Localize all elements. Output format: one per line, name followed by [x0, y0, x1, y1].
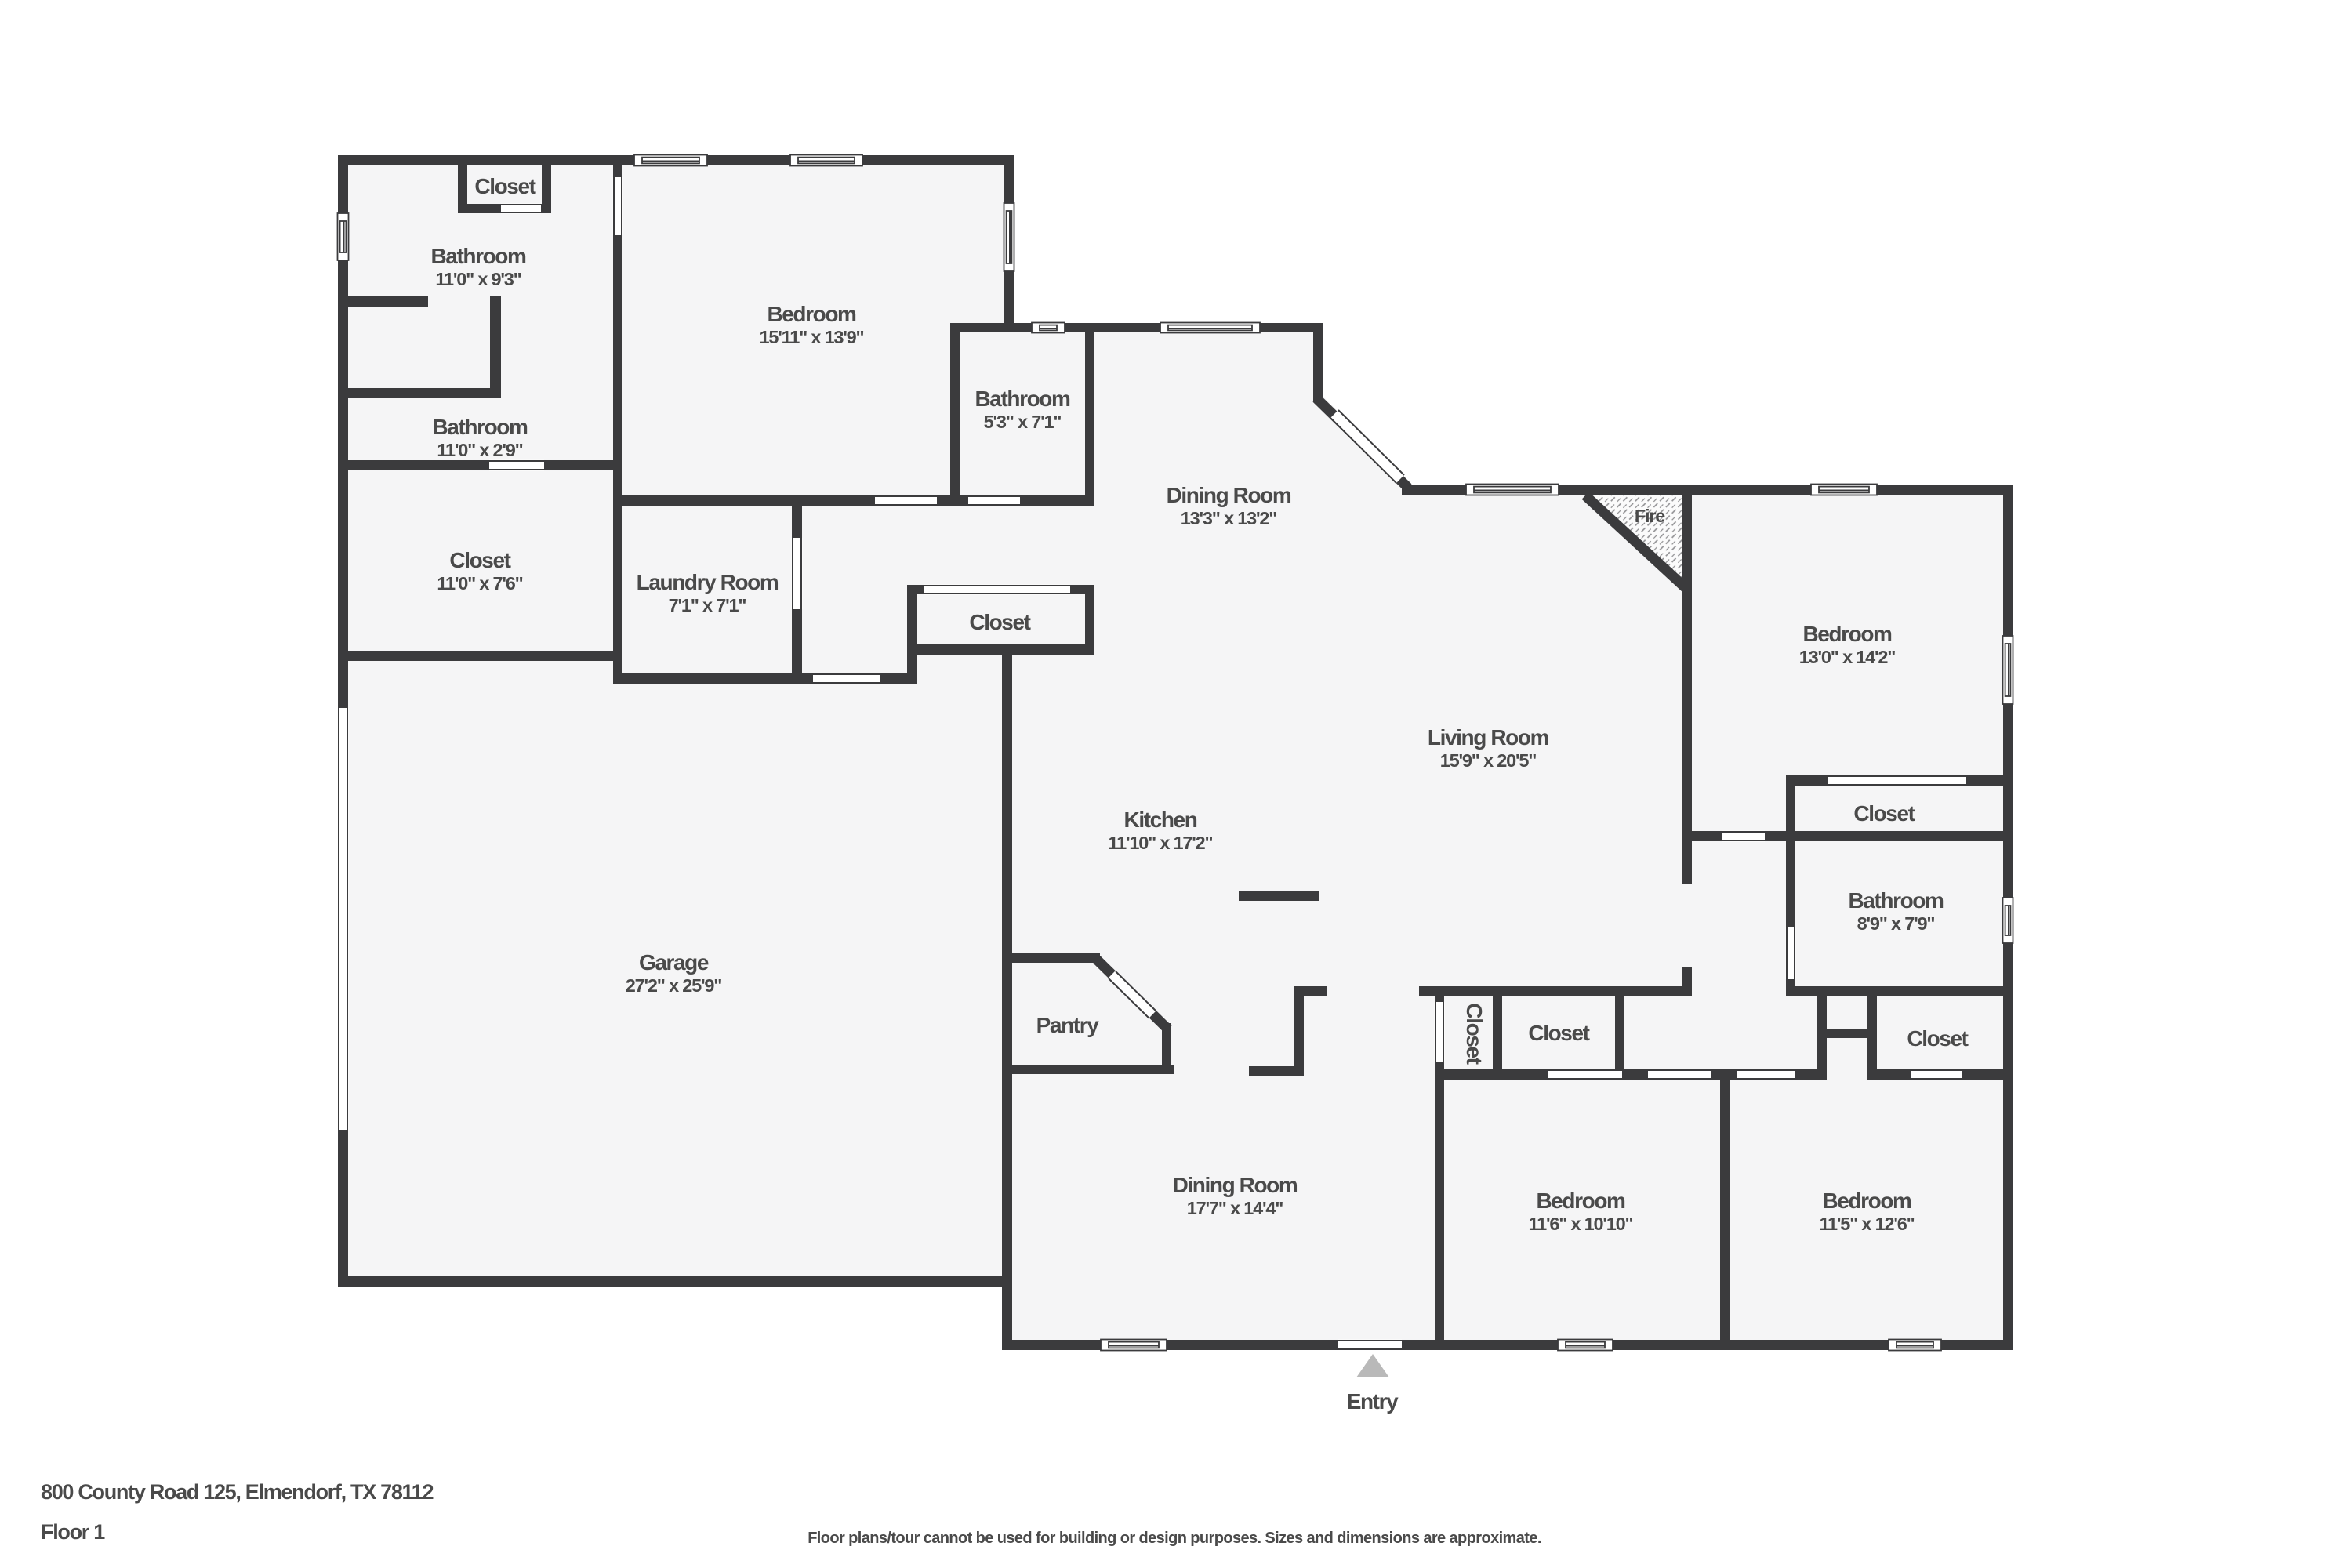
svg-text:5'3" x 7'1": 5'3" x 7'1" — [984, 412, 1062, 432]
svg-text:27'2" x 25'9": 27'2" x 25'9" — [626, 975, 721, 996]
svg-text:800 County Road 125, Elmendorf: 800 County Road 125, Elmendorf, TX 78112 — [41, 1480, 433, 1504]
svg-text:Bathroom: Bathroom — [432, 415, 528, 439]
svg-text:Bedroom: Bedroom — [1536, 1189, 1625, 1213]
svg-text:Pantry: Pantry — [1036, 1013, 1100, 1037]
svg-text:Laundry Room: Laundry Room — [637, 570, 779, 594]
svg-text:Closet: Closet — [474, 174, 535, 198]
svg-text:15'11" x 13'9": 15'11" x 13'9" — [760, 327, 864, 347]
svg-text:Closet: Closet — [1528, 1021, 1589, 1045]
svg-text:Floor 1: Floor 1 — [41, 1520, 105, 1544]
svg-text:11'0" x 2'9": 11'0" x 2'9" — [437, 440, 522, 460]
svg-text:Closet: Closet — [1462, 1003, 1486, 1064]
svg-text:Bedroom: Bedroom — [1822, 1189, 1911, 1213]
svg-text:Closet: Closet — [449, 548, 510, 572]
svg-text:11'10" x 17'2": 11'10" x 17'2" — [1109, 833, 1213, 853]
svg-text:Bathroom: Bathroom — [975, 387, 1070, 411]
svg-text:Garage: Garage — [639, 950, 709, 975]
svg-text:Closet: Closet — [969, 610, 1030, 634]
svg-text:Bathroom: Bathroom — [1848, 888, 1944, 913]
svg-text:17'7" x 14'4": 17'7" x 14'4" — [1187, 1198, 1283, 1218]
svg-text:Living Room: Living Room — [1428, 725, 1549, 750]
svg-text:Bathroom: Bathroom — [430, 244, 526, 268]
svg-text:13'3" x 13'2": 13'3" x 13'2" — [1181, 508, 1276, 528]
svg-text:11'6" x 10'10": 11'6" x 10'10" — [1529, 1214, 1633, 1234]
svg-text:Closet: Closet — [1907, 1026, 1968, 1051]
svg-text:Floor plans/tour cannot be use: Floor plans/tour cannot be used for buil… — [808, 1530, 1541, 1547]
svg-text:8'9" x 7'9": 8'9" x 7'9" — [1857, 913, 1935, 934]
svg-text:15'9" x 20'5": 15'9" x 20'5" — [1440, 750, 1536, 771]
svg-text:Entry: Entry — [1347, 1389, 1399, 1414]
svg-text:Bedroom: Bedroom — [1802, 622, 1892, 646]
svg-text:7'1" x 7'1": 7'1" x 7'1" — [669, 595, 746, 615]
svg-text:Closet: Closet — [1853, 801, 1915, 826]
svg-text:11'0" x 7'6": 11'0" x 7'6" — [437, 573, 522, 593]
svg-text:Kitchen: Kitchen — [1124, 808, 1197, 832]
svg-text:11'5" x 12'6": 11'5" x 12'6" — [1819, 1214, 1914, 1234]
svg-text:Fire: Fire — [1635, 506, 1665, 526]
svg-text:11'0" x 9'3": 11'0" x 9'3" — [435, 269, 521, 289]
svg-text:Dining Room: Dining Room — [1173, 1173, 1298, 1197]
svg-text:Dining Room: Dining Room — [1167, 483, 1291, 507]
svg-text:Bedroom: Bedroom — [767, 302, 856, 326]
svg-text:13'0" x 14'2": 13'0" x 14'2" — [1799, 647, 1895, 667]
